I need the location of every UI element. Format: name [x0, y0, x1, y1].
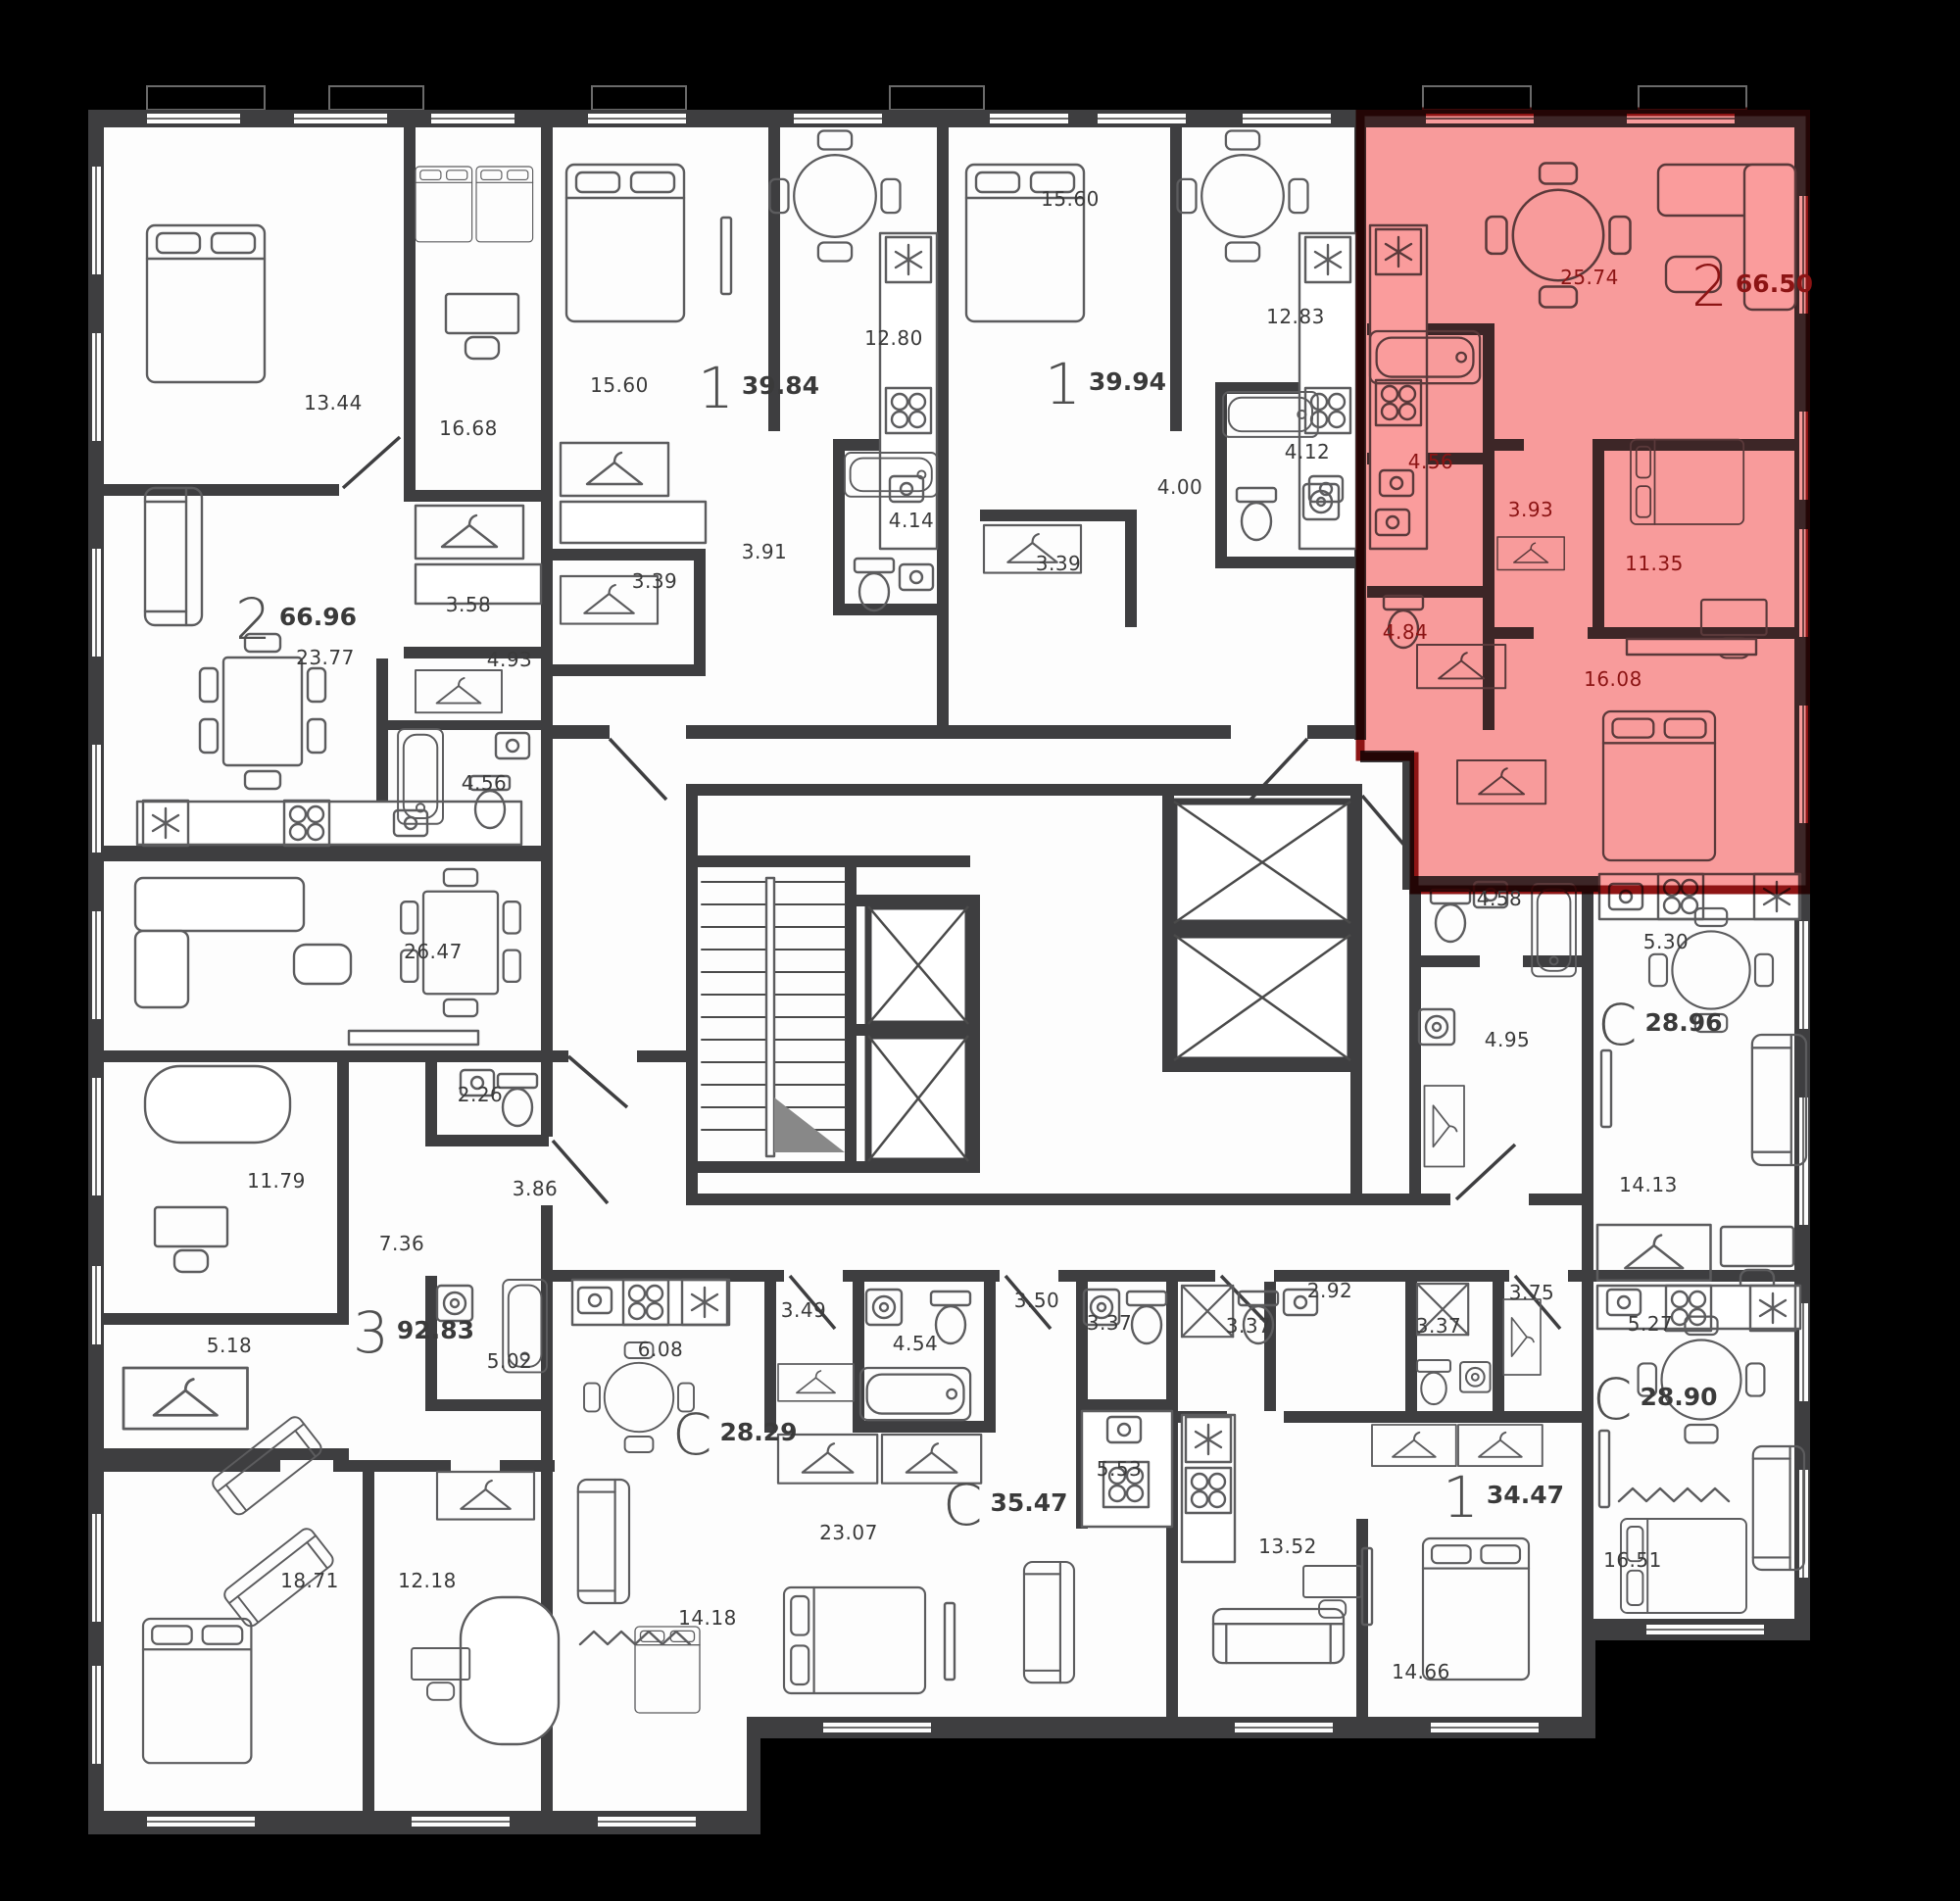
room-area-label: 4.00 [1157, 475, 1203, 499]
room-area-label: 5.02 [487, 1349, 533, 1373]
room-area-label: 26.47 [404, 940, 463, 963]
room-area-label: 25.74 [1560, 266, 1619, 289]
room-area-label: 7.36 [379, 1232, 425, 1255]
room-area-label: 14.18 [678, 1606, 737, 1630]
room-area-label: 4.12 [1285, 440, 1331, 463]
room-area-label: 16.08 [1584, 667, 1642, 691]
room-area-label: 4.58 [1477, 887, 1523, 910]
room-area-label: 5.53 [1097, 1457, 1143, 1481]
room-area-label: 14.13 [1619, 1173, 1678, 1196]
room-area-label: 3.93 [1508, 498, 1554, 521]
room-area-label: 4.95 [1485, 1028, 1531, 1051]
room-area-label: 3.37 [1226, 1314, 1272, 1338]
room-area-label: 15.60 [590, 373, 649, 397]
room-area-label: 23.07 [819, 1521, 878, 1544]
room-area-label: 18.71 [280, 1569, 339, 1592]
room-area-label: 4.84 [1383, 620, 1429, 644]
room-area-label: 5.30 [1643, 930, 1690, 953]
room-area-label: 12.80 [864, 326, 923, 350]
room-area-label: 3.37 [1087, 1311, 1133, 1335]
room-area-label: 16.68 [439, 416, 498, 440]
room-area-label: 5.18 [207, 1334, 253, 1357]
room-area-label: 2.92 [1307, 1279, 1353, 1302]
room-area-label: 3.86 [513, 1177, 559, 1200]
room-area-label: 5.27 [1628, 1312, 1674, 1336]
room-area-label: 11.79 [247, 1169, 306, 1193]
highlighted-apartment-overlay[interactable] [1360, 112, 1810, 890]
room-area-label: 14.66 [1392, 1660, 1450, 1683]
room-area-label: 3.39 [1036, 552, 1082, 575]
room-area-label: 3.49 [781, 1298, 827, 1322]
room-area-label: 12.83 [1266, 305, 1325, 328]
room-area-label: 15.60 [1041, 187, 1100, 211]
room-area-label: 3.37 [1416, 1314, 1462, 1338]
room-area-label: 13.52 [1258, 1535, 1317, 1558]
room-area-label: 4.56 [1408, 450, 1454, 473]
room-area-label: 2.26 [458, 1083, 504, 1106]
floor-plan-page: 13.4416.683.584.9323.774.5615.603.393.91… [0, 0, 1960, 1901]
room-area-label: 3.91 [742, 540, 788, 563]
room-area-label: 3.39 [632, 569, 678, 593]
room-area-label: 4.93 [487, 648, 533, 671]
room-area-label: 4.54 [893, 1332, 939, 1355]
room-area-label: 4.14 [889, 509, 935, 532]
room-area-label: 4.56 [462, 771, 508, 795]
room-area-label: 12.18 [398, 1569, 457, 1592]
floor-plan: 13.4416.683.584.9323.774.5615.603.393.91… [0, 0, 1960, 1901]
room-area-label: 16.51 [1603, 1548, 1662, 1572]
room-area-label: 11.35 [1625, 552, 1684, 575]
room-area-label: 3.75 [1509, 1281, 1555, 1304]
room-area-label: 3.58 [446, 593, 492, 616]
room-area-label: 6.08 [638, 1338, 684, 1361]
room-area-label: 3.50 [1014, 1289, 1060, 1312]
room-area-label: 13.44 [304, 391, 363, 414]
room-area-label: 23.77 [296, 646, 355, 669]
